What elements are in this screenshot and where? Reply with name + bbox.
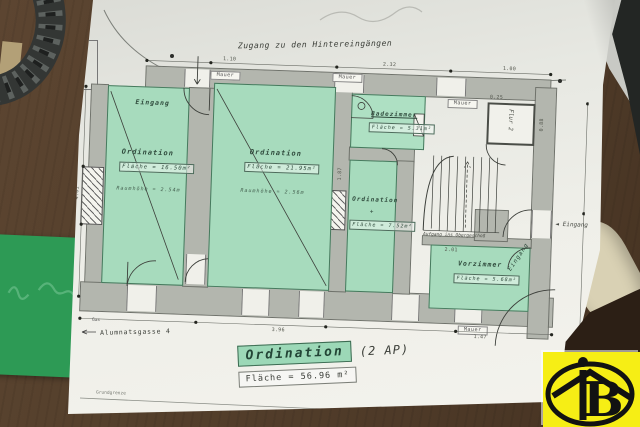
dimension-label: 1.10 [223, 56, 236, 62]
plot-boundary-line [80, 398, 368, 411]
dimension-label: 0.25 [490, 94, 503, 100]
logo-letter: B [583, 372, 624, 427]
dimension-label: 4.01 [74, 186, 80, 199]
ib-immobilien-logo: B [543, 352, 640, 427]
boundary-label: Grundgrenze [96, 390, 126, 396]
title-room-type: Ordination [237, 341, 352, 367]
dimension-label: 2.01 [444, 247, 457, 253]
door-arcs [125, 86, 561, 348]
room1-entrance-label: Eingang [135, 98, 170, 107]
stair-treads [423, 155, 502, 233]
dimension-label: 1.00 [503, 66, 516, 72]
room3-plus-mark: + [370, 208, 375, 215]
vorzimmer-name: Vorzimmer [458, 259, 502, 269]
plan-linework [75, 46, 590, 363]
paper-wrinkle [320, 7, 422, 21]
dimension-label: 2.32 [383, 62, 396, 68]
entrance-arrow: ◄ Eingang [555, 221, 588, 229]
dimension-label: 1.87 [337, 167, 343, 180]
dimension-label: 0.88 [539, 118, 545, 131]
north-entry-arrow-icon [194, 56, 201, 84]
logo-i-dot [578, 357, 588, 367]
floor-plan-drawing: Mauer Mauer Mauer Mauer Flur 2 [75, 46, 590, 363]
title-suffix: (2 AP) [359, 342, 409, 358]
dimension-label: 1.47 [473, 334, 486, 340]
photo-of-floor-plan: Ausgang Zugang zu den Hintereingängen Ga… [0, 0, 640, 427]
dimension-label: 3.96 [271, 327, 284, 333]
title-block: Ordination (2 AP) Fläche = 56.96 m² [237, 338, 410, 387]
entrance-arrow-label: Eingang [563, 221, 589, 229]
